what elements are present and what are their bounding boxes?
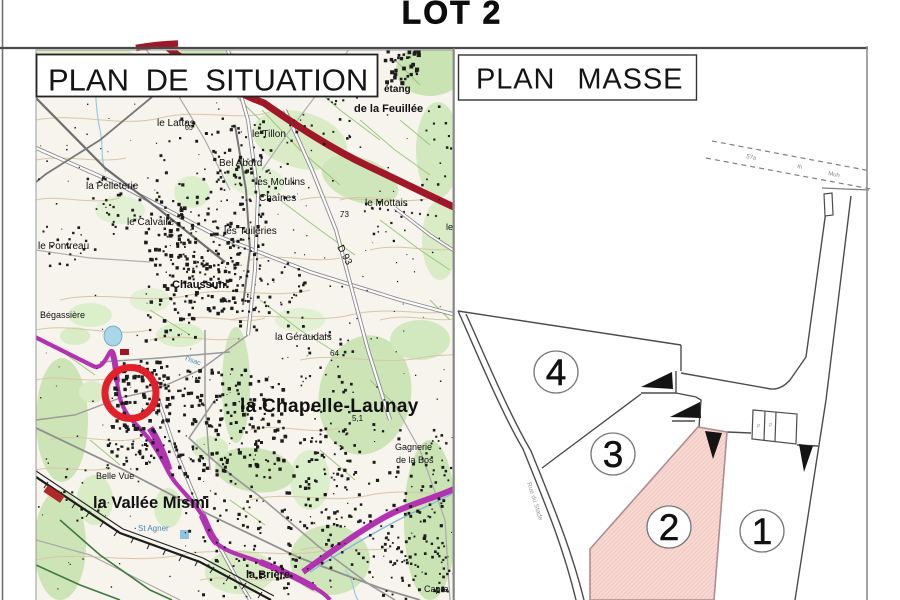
svg-text:la Brière: la Brière — [246, 569, 290, 581]
svg-text:Bel Abord: Bel Abord — [219, 158, 262, 169]
svg-text:64: 64 — [330, 349, 339, 358]
svg-text:LOT 2: LOT 2 — [402, 0, 503, 31]
svg-text:65: 65 — [185, 125, 193, 132]
svg-text:3: 3 — [603, 434, 624, 475]
svg-text:le Calvaire: le Calvaire — [127, 217, 175, 228]
svg-text:Gagnerie: Gagnerie — [395, 442, 432, 452]
svg-text:la Pelleterie: la Pelleterie — [86, 181, 139, 192]
svg-text:1: 1 — [752, 511, 773, 552]
svg-text:de la Bos: de la Bos — [396, 455, 434, 465]
svg-text:les Tuileries: les Tuileries — [224, 226, 277, 237]
svg-text:Chaussun: Chaussun — [172, 279, 225, 291]
svg-text:le Pontreau: le Pontreau — [38, 241, 89, 252]
svg-text:étang: étang — [384, 84, 411, 95]
svg-text:Capre: Capre — [424, 584, 449, 594]
svg-text:Bégassière: Bégassière — [40, 310, 85, 320]
svg-text:2: 2 — [659, 507, 680, 548]
svg-text:le: le — [446, 222, 453, 232]
svg-text:4: 4 — [546, 352, 567, 393]
svg-text:PLAN MASSE: PLAN MASSE — [476, 64, 683, 96]
svg-text:la Chapelle-Launay: la Chapelle-Launay — [240, 396, 419, 417]
svg-text:de la Feuillée: de la Feuillée — [354, 103, 423, 115]
svg-text:le Mottais: le Mottais — [365, 198, 408, 209]
svg-text:St Agner: St Agner — [138, 524, 169, 533]
svg-text:PLAN DE SITUATION: PLAN DE SITUATION — [48, 63, 368, 98]
svg-text:les Moulins: les Moulins — [255, 177, 305, 188]
svg-text:Belle Vue: Belle Vue — [96, 471, 134, 481]
svg-text:le Tillon: le Tillon — [252, 129, 286, 140]
svg-text:Chaînes: Chaînes — [259, 193, 296, 204]
svg-text:la Vallée Mismi: la Vallée Mismi — [93, 494, 209, 512]
svg-text:73: 73 — [340, 210, 349, 219]
svg-text:la Géraudais: la Géraudais — [275, 332, 332, 343]
